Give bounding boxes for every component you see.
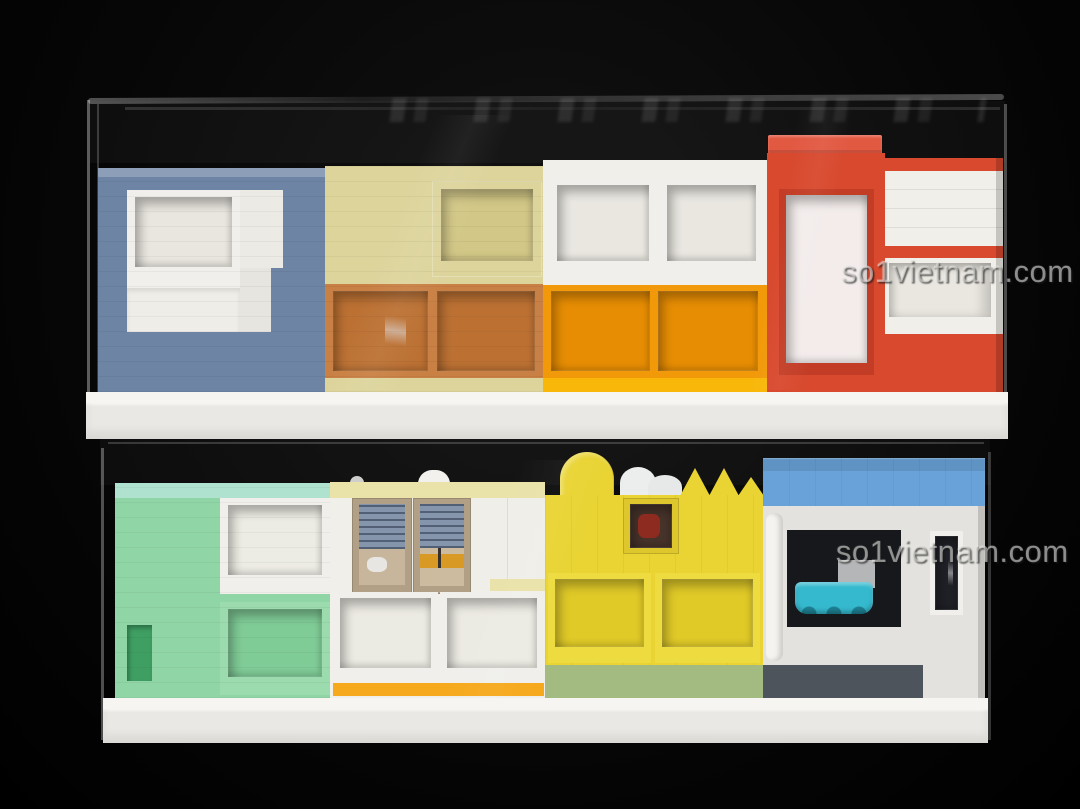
cream-house-blinds-right [420,504,464,548]
cream-house-box-frame-left [333,592,438,683]
yellow-house-box-frame-left [548,573,651,663]
case-top-base-front [86,403,1008,439]
cream-house-panel-seam [507,498,508,591]
white-house-window-recess-left [557,185,649,261]
red-house-roof-cap [768,135,882,155]
watermark-top: so1vietnam.com [841,254,1074,290]
cream-house-blinds-left [359,504,405,549]
white-house-orange-box-right [658,291,758,371]
facade-blue-roof-house [763,458,985,698]
cream-house-cat-figure [367,557,387,572]
white-house-orange-box-left [551,291,650,371]
blueroof-gray-stripe [763,665,923,698]
blueroof-pillar [766,513,783,661]
mint-house-door [127,625,152,681]
case-bottom-base-front [103,709,988,743]
white-house-window-frame-left [549,178,657,280]
yellow-house-box-recess-right [662,579,753,647]
mint-house-window-recess [228,505,322,575]
cream-house-yellow-stripe [330,482,545,498]
blue-house-window-recess [135,197,232,267]
blue-house-side-panel-lower [240,268,271,332]
facade-blue-house [98,168,325,392]
yellow-house-window-red-object [638,514,660,538]
mint-house-aqua-stripe [115,483,330,498]
mint-house-box-frame [220,602,330,695]
yellow-house-box-recess-left [555,579,644,647]
lego-display-photo: so1vietnam.com [0,0,1080,809]
white-red-house-tile-lines [885,178,1003,246]
glass-reflection-glyphs [373,98,986,122]
glass-bottom-left-edge [101,448,104,740]
yellow-house-window-recess [630,504,672,548]
cream-house-white-panel [471,498,545,591]
cream-house-orange-stripe [333,683,544,696]
tan-house-window-frame [433,182,541,276]
cream-house-orange-shelf [420,554,464,568]
blueroof-roof [763,458,985,506]
cream-house-box-frame-right [440,592,544,683]
cream-house-box-recess-left [340,598,431,668]
mint-house-window-frame [220,498,330,594]
white-house-window-frame-right [659,178,764,280]
facade-yellow-arch-house [545,452,763,698]
display-case-top [0,0,1080,440]
blue-house-window-frame [127,190,240,290]
yellow-house-sage-stripe [545,665,763,698]
yellow-house-box-frame-right [655,573,760,663]
display-case-bottom [0,440,1080,809]
white-house-orange-section [543,285,767,378]
tan-house-orange-box-left [333,291,428,371]
yellow-house-wall [545,495,763,667]
tan-house-orange-section [325,284,543,378]
white-red-house-bottom-red [885,334,1003,392]
cream-house-blind-cord [438,548,441,568]
facade-cream-tan-house [330,482,545,698]
blue-house-top-edge [98,168,325,177]
facade-tan-house [325,166,543,392]
tan-house-window-recess [441,189,533,261]
mint-house-box-recess [228,609,322,677]
white-red-house-top-stripe [885,158,1003,171]
yellow-house-gable-2 [709,468,739,496]
cream-house-window-frame-right [413,498,471,594]
blueroof-teal-boat-hull [795,582,873,614]
cream-house-window-interior-right [420,548,464,586]
yellow-house-gable-1 [680,468,710,496]
tan-house-orange-box-right [437,291,535,371]
blue-house-lower-panel [127,288,240,332]
yellow-house-window-frame [623,498,679,554]
white-house-orange-sill [543,378,767,392]
blue-house-side-panel-upper [240,190,283,268]
yellow-house-arch [560,452,614,496]
cream-house-window-interior-left [359,549,405,585]
cream-house-window-frame-left [352,498,412,593]
cream-house-box-recess-right [447,598,537,668]
case-top-base [86,392,1008,439]
cream-house-panel-yellow-sill [490,579,545,591]
yellow-house-gable-3 [738,477,764,496]
watermark-bottom: so1vietnam.com [836,534,1069,570]
facade-white-orange-house [543,160,767,392]
glass-left-edge-highlight [87,100,90,435]
case-bottom-base [103,698,988,743]
facade-mint-green-house [115,483,330,698]
white-house-window-recess-right [667,185,756,261]
glass-bottom-right-edge [988,452,991,740]
glass-bottom-top-edge [108,442,984,444]
